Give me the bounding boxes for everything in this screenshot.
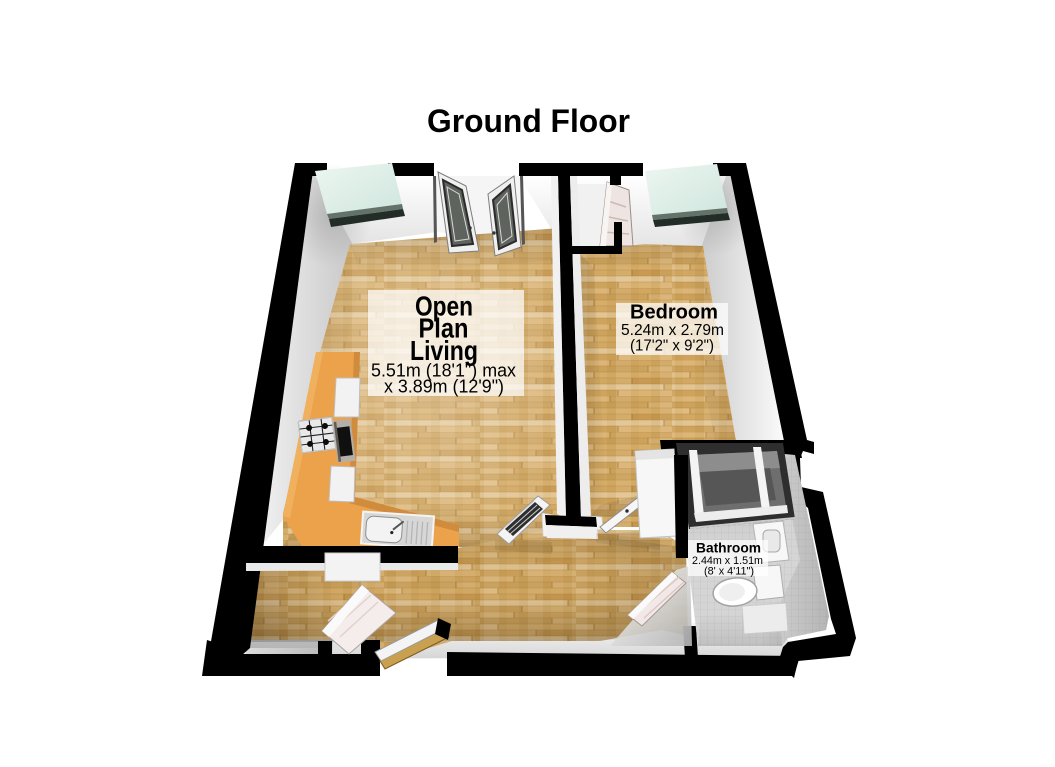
svg-text:5.24m x 2.79m: 5.24m x 2.79m: [621, 322, 724, 339]
svg-text:(8' x 4'11"): (8' x 4'11"): [704, 566, 754, 578]
svg-text:Bedroom: Bedroom: [630, 302, 718, 324]
svg-text:x 3.89m (12'9"): x 3.89m (12'9"): [384, 377, 504, 397]
svg-text:Ground Floor: Ground Floor: [427, 103, 630, 139]
svg-text:Bathroom: Bathroom: [696, 540, 761, 556]
svg-text:(17'2" x 9'2"): (17'2" x 9'2"): [630, 338, 714, 355]
